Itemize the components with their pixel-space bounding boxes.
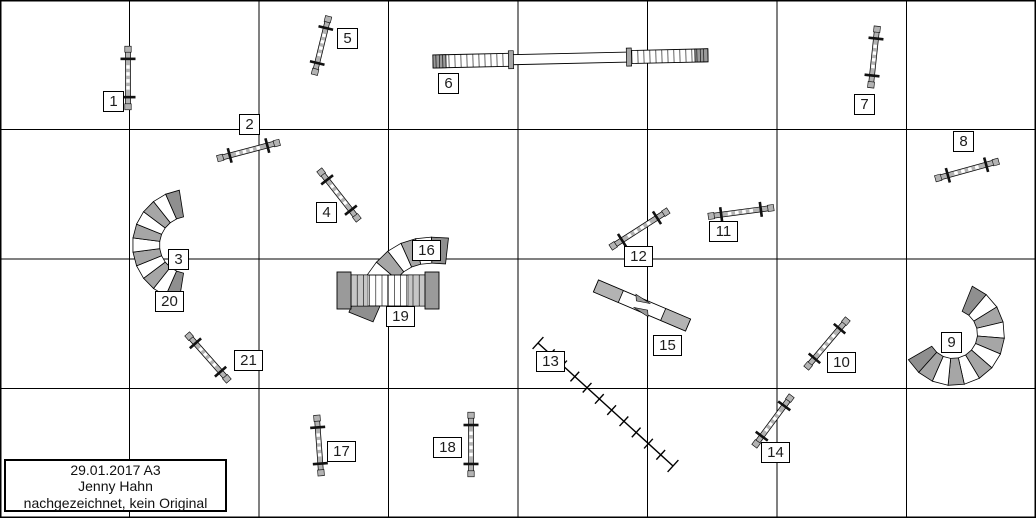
obstacle-number-6: 6 <box>438 73 459 94</box>
tunnel-arc-obstacle-3-20 <box>133 190 184 300</box>
obstacle-number-17: 17 <box>327 441 356 462</box>
obstacle-number-13: 13 <box>536 351 565 372</box>
obstacle-number-10: 10 <box>827 352 856 373</box>
jump-obstacle-8 <box>933 154 1000 186</box>
obstacle-number-1: 1 <box>103 91 124 112</box>
jump-obstacle-17 <box>309 415 328 477</box>
course-canvas <box>0 0 1036 518</box>
obstacle-number-18: 18 <box>433 437 462 458</box>
obstacle-number-12: 12 <box>624 246 653 267</box>
course-note: nachgezeichnet, kein Original <box>6 495 225 511</box>
seesaw-obstacle-15 <box>593 279 691 333</box>
obstacle-number-20: 20 <box>155 291 184 312</box>
obstacle-number-7: 7 <box>854 94 875 115</box>
obstacle-number-19: 19 <box>386 306 415 327</box>
agility-course-map: 123456789101112131415161718192021 29.01.… <box>0 0 1036 518</box>
obstacle-number-9: 9 <box>941 332 962 353</box>
a-frame-obstacle-19 <box>337 272 439 309</box>
jump-obstacle-2 <box>215 135 281 166</box>
course-date-class: 29.01.2017 A3 <box>6 462 225 478</box>
jump-obstacle-7 <box>863 25 885 88</box>
obstacle-number-5: 5 <box>337 28 358 49</box>
obstacle-number-3: 3 <box>168 249 189 270</box>
course-judge-name: Jenny Hahn <box>6 478 225 494</box>
obstacle-number-4: 4 <box>316 202 337 223</box>
obstacle-number-14: 14 <box>761 442 790 463</box>
dog-walk-obstacle-6 <box>433 46 708 70</box>
jump-obstacle-21 <box>182 329 235 386</box>
obstacles <box>121 14 1005 476</box>
obstacle-number-8: 8 <box>953 131 974 152</box>
obstacle-number-21: 21 <box>234 350 263 371</box>
obstacle-number-16: 16 <box>412 240 441 261</box>
course-info-box: 29.01.2017 A3 Jenny Hahn nachgezeichnet,… <box>4 459 227 512</box>
obstacle-number-2: 2 <box>239 114 260 135</box>
obstacle-number-15: 15 <box>653 335 682 356</box>
obstacle-number-11: 11 <box>709 221 738 242</box>
jump-obstacle-18 <box>464 412 479 477</box>
jump-obstacle-5 <box>307 14 336 76</box>
